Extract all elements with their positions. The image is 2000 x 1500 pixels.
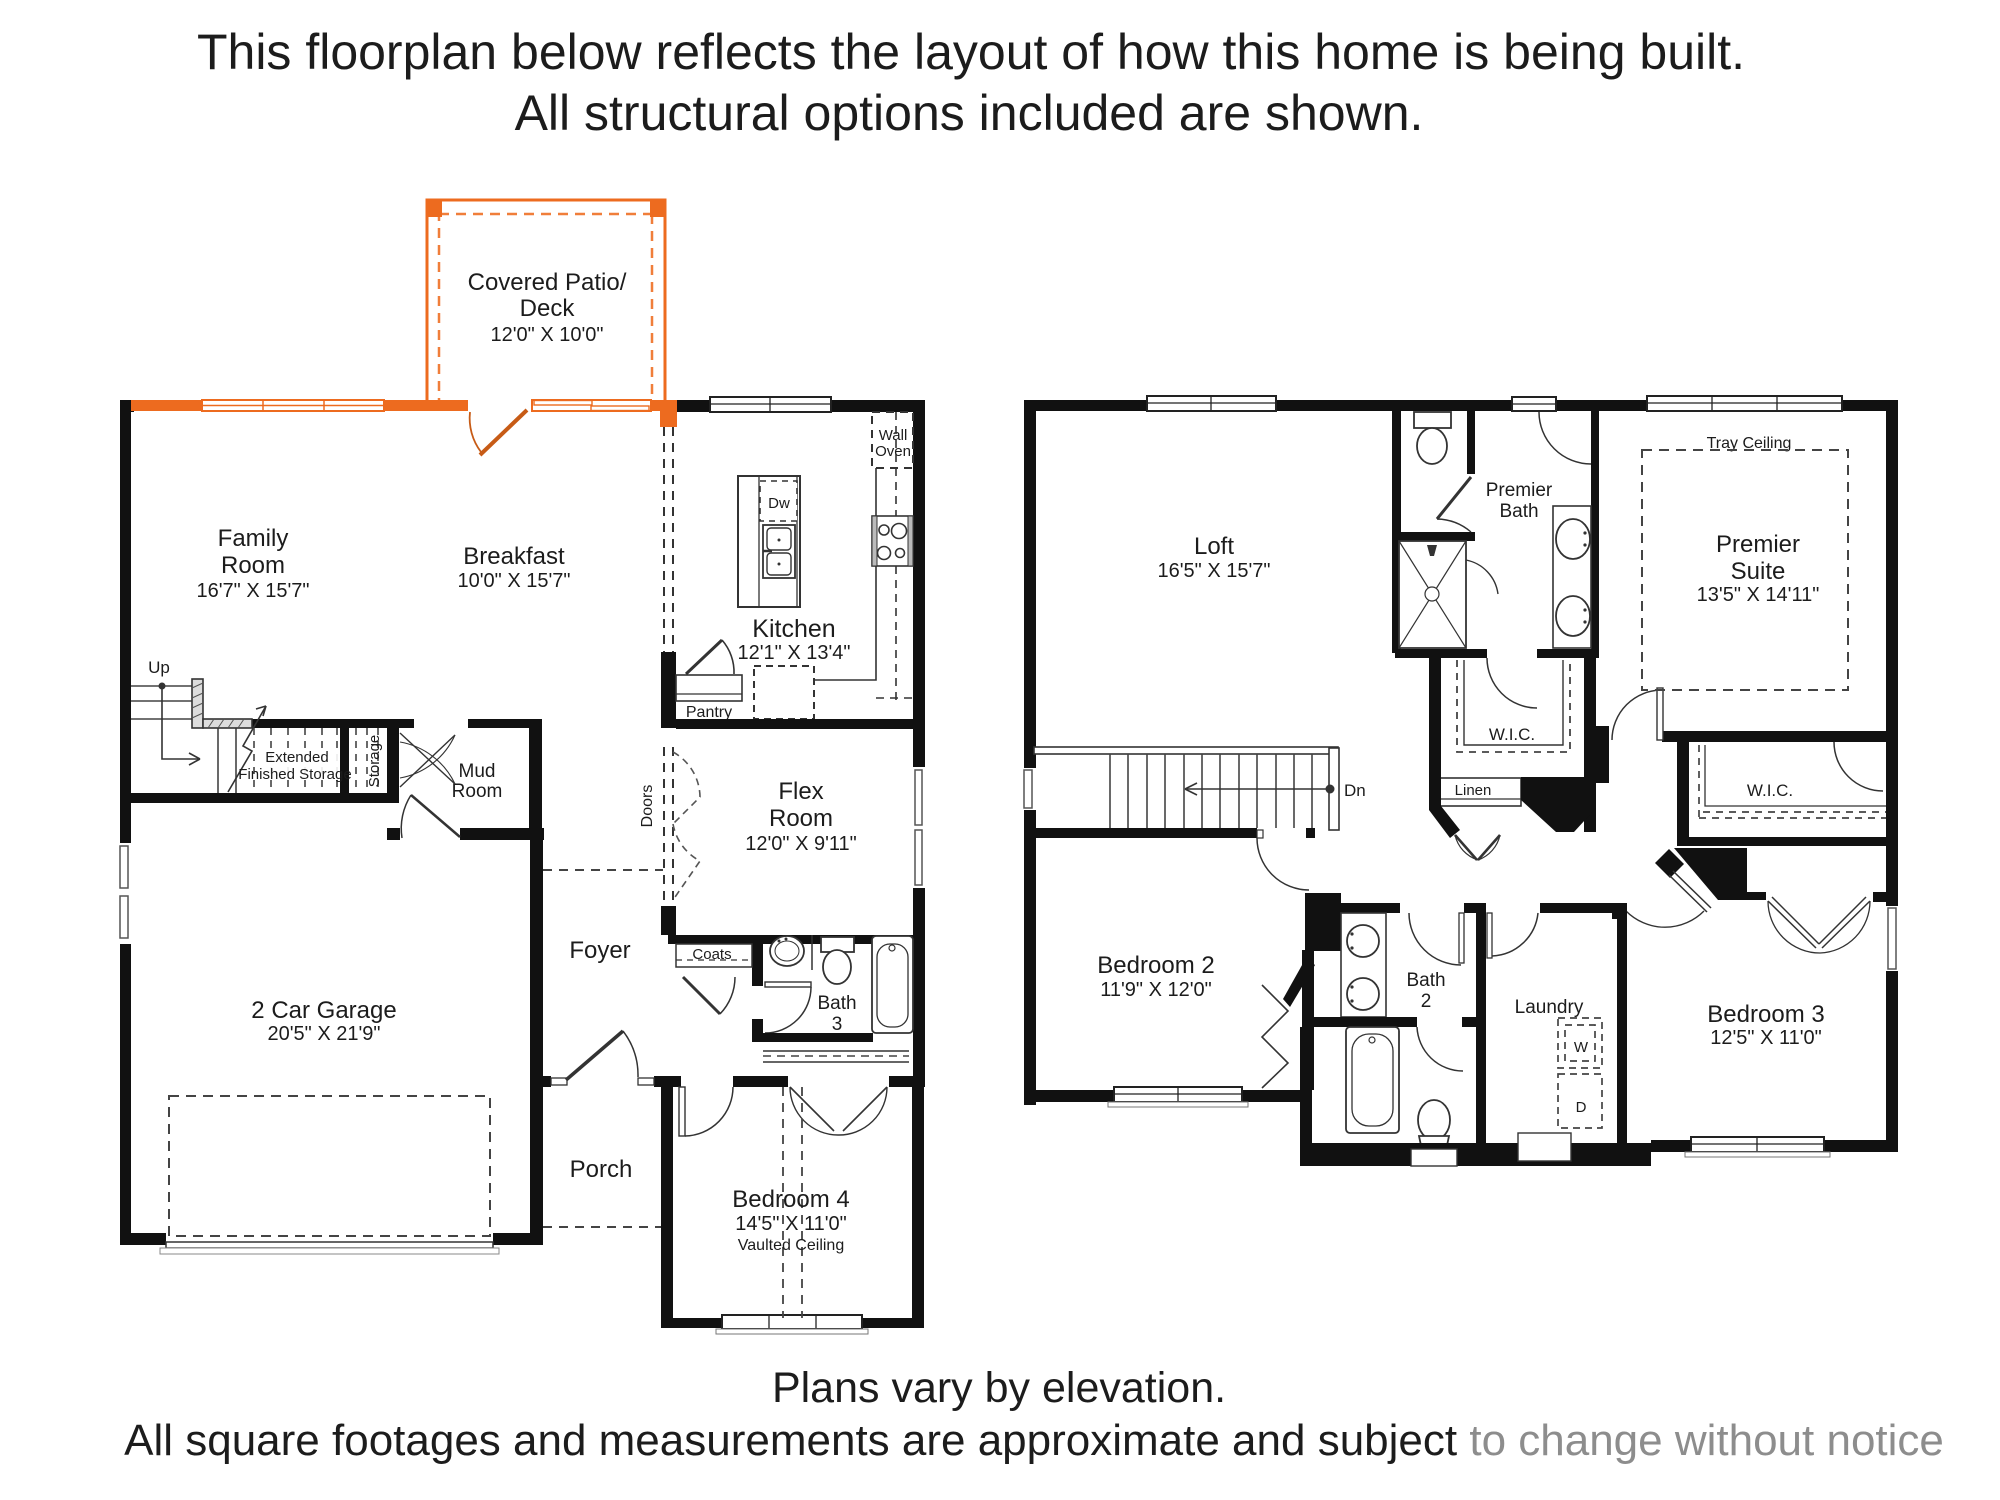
svg-text:Suite: Suite bbox=[1731, 558, 1786, 585]
svg-text:W.I.C.: W.I.C. bbox=[1747, 781, 1793, 800]
svg-text:11'9" X 12'0": 11'9" X 12'0" bbox=[1100, 979, 1212, 1001]
svg-text:All square footages and measur: All square footages and measurements are… bbox=[124, 1416, 1944, 1465]
svg-text:Bedroom 2: Bedroom 2 bbox=[1097, 952, 1214, 979]
svg-text:12'0" X 10'0": 12'0" X 10'0" bbox=[490, 324, 603, 346]
svg-text:This floorplan below reflects: This floorplan below reflects the layout… bbox=[197, 24, 1745, 80]
svg-text:Coats: Coats bbox=[692, 946, 731, 963]
svg-text:Deck: Deck bbox=[520, 295, 576, 322]
svg-text:20'5" X 21'9": 20'5" X 21'9" bbox=[267, 1023, 380, 1045]
svg-text:Kitchen: Kitchen bbox=[752, 615, 835, 643]
svg-text:Oven: Oven bbox=[875, 443, 911, 460]
svg-text:Room: Room bbox=[452, 781, 503, 802]
svg-text:12'5" X 11'0": 12'5" X 11'0" bbox=[1710, 1027, 1822, 1049]
svg-text:Family: Family bbox=[218, 525, 289, 552]
svg-text:Laundry: Laundry bbox=[1515, 997, 1584, 1018]
svg-text:Covered Patio/: Covered Patio/ bbox=[468, 269, 627, 296]
svg-text:Pantry: Pantry bbox=[686, 704, 732, 721]
svg-text:Room: Room bbox=[221, 552, 285, 579]
svg-text:Premier: Premier bbox=[1716, 531, 1800, 558]
svg-text:Flex: Flex bbox=[778, 778, 823, 805]
svg-text:Extended: Extended bbox=[265, 749, 328, 766]
svg-text:16'5" X 15'7": 16'5" X 15'7" bbox=[1157, 560, 1270, 582]
svg-text:Mud: Mud bbox=[459, 761, 496, 782]
svg-text:Bedroom 3: Bedroom 3 bbox=[1707, 1001, 1824, 1028]
svg-text:Bedroom 4: Bedroom 4 bbox=[732, 1186, 849, 1213]
svg-text:13'5" X 14'11": 13'5" X 14'11" bbox=[1697, 584, 1820, 606]
svg-text:2: 2 bbox=[1421, 991, 1432, 1012]
svg-text:Foyer: Foyer bbox=[569, 937, 630, 964]
svg-text:Bath: Bath bbox=[1406, 970, 1445, 991]
svg-text:Premier: Premier bbox=[1486, 480, 1553, 501]
svg-text:Bath: Bath bbox=[817, 993, 856, 1014]
svg-text:D: D bbox=[1576, 1099, 1587, 1116]
svg-text:Plans vary by elevation.: Plans vary by elevation. bbox=[772, 1364, 1226, 1412]
svg-text:3: 3 bbox=[832, 1014, 843, 1035]
svg-text:W.I.C.: W.I.C. bbox=[1489, 725, 1535, 744]
svg-text:Wall: Wall bbox=[879, 427, 908, 444]
svg-text:Porch: Porch bbox=[570, 1156, 633, 1183]
svg-text:Room: Room bbox=[769, 805, 833, 832]
svg-text:12'1" X 13'4": 12'1" X 13'4" bbox=[737, 642, 850, 664]
svg-text:Dn: Dn bbox=[1344, 781, 1366, 800]
svg-text:Loft: Loft bbox=[1194, 533, 1234, 560]
svg-text:Doors: Doors bbox=[639, 785, 656, 828]
svg-text:W: W bbox=[1574, 1039, 1589, 1056]
svg-text:Breakfast: Breakfast bbox=[463, 543, 565, 570]
svg-text:14'5" X 11'0": 14'5" X 11'0" bbox=[735, 1213, 847, 1235]
svg-text:All structural options include: All structural options included are show… bbox=[515, 85, 1424, 141]
svg-text:12'0" X 9'11": 12'0" X 9'11" bbox=[745, 833, 857, 855]
svg-text:16'7" X 15'7": 16'7" X 15'7" bbox=[196, 580, 309, 602]
svg-text:2 Car Garage: 2 Car Garage bbox=[251, 997, 396, 1024]
svg-text:Bath: Bath bbox=[1499, 501, 1538, 522]
svg-text:Linen: Linen bbox=[1455, 782, 1492, 799]
svg-text:Up: Up bbox=[148, 658, 170, 677]
svg-text:Finished Storage: Finished Storage bbox=[238, 766, 351, 783]
svg-text:10'0" X 15'7": 10'0" X 15'7" bbox=[457, 570, 570, 592]
svg-text:Storage: Storage bbox=[366, 735, 383, 788]
svg-text:Dw: Dw bbox=[768, 495, 790, 512]
svg-text:Vaulted Ceiling: Vaulted Ceiling bbox=[738, 1237, 844, 1254]
